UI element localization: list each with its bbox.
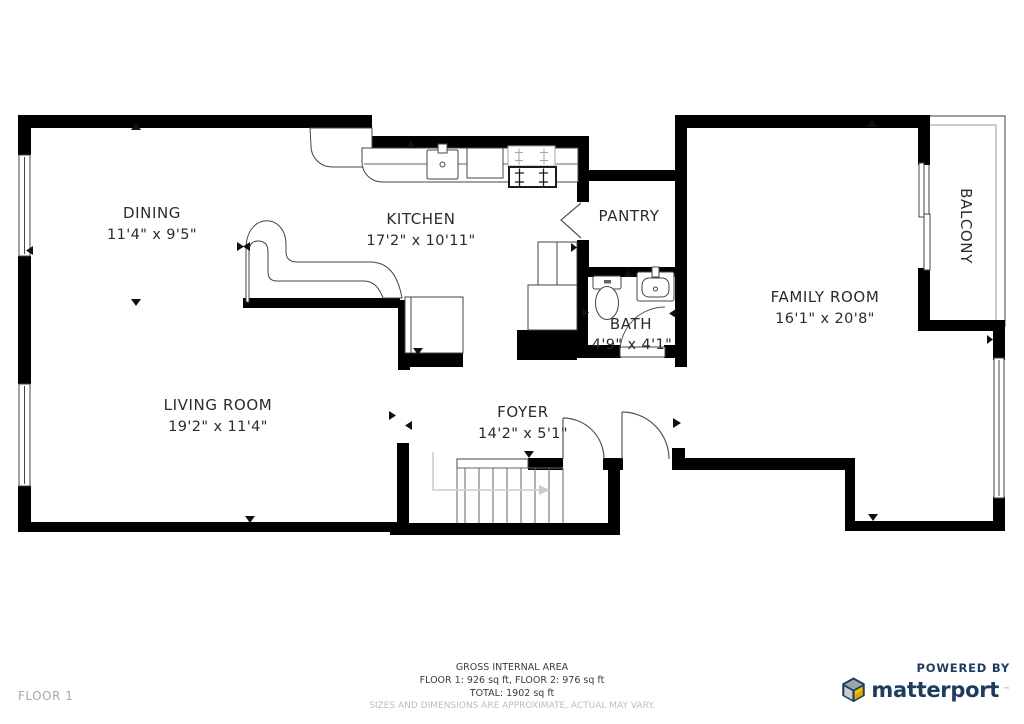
room-label-living-room: LIVING ROOM <box>164 396 273 414</box>
pantry-door <box>561 203 581 238</box>
sliding-door <box>919 163 924 217</box>
room-label-family-room: FAMILY ROOM <box>771 288 880 306</box>
floor-plan-page: DINING 11'4" x 9'5" KITCHEN 17'2" x 10'1… <box>0 0 1024 724</box>
room-label-pantry: PANTRY <box>599 207 660 225</box>
powered-by-label: POWERED BY <box>840 661 1010 675</box>
trademark-mark: ™ <box>1003 685 1010 695</box>
walk-path <box>433 452 541 490</box>
floor-label: FLOOR 1 <box>18 689 73 703</box>
room-dims-living-room: 19'2" x 11'4" <box>168 419 268 435</box>
faucet <box>438 144 447 153</box>
room-label-kitchen: KITCHEN <box>386 210 455 228</box>
cooktop <box>508 146 555 166</box>
room-dims-kitchen: 17'2" x 10'11" <box>366 233 475 249</box>
sliding-door <box>924 214 930 270</box>
dishwasher <box>467 148 503 178</box>
floor-plan: DINING 11'4" x 9'5" KITCHEN 17'2" x 10'1… <box>0 0 1024 724</box>
stove <box>509 167 556 187</box>
room-dims-bath: 4'9" x 4'1" <box>592 337 672 353</box>
room-dims-foyer: 14'2" x 5'1" <box>478 426 568 442</box>
door-arc <box>622 412 669 459</box>
stair-treads <box>457 468 563 523</box>
room-dims-dining: 11'4" x 9'5" <box>107 227 197 243</box>
room-label-bath: BATH <box>610 315 652 333</box>
matterport-branding: POWERED BY matterport™ <box>840 661 1010 703</box>
bath-faucet <box>652 267 659 277</box>
door-arc <box>563 418 604 459</box>
room-label-foyer: FOYER <box>497 403 549 421</box>
matterport-cube-icon <box>840 676 867 703</box>
toilet-button <box>604 280 611 284</box>
cabinet <box>528 285 577 330</box>
cabinet <box>405 297 463 353</box>
room-dims-family-room: 16'1" x 20'8" <box>775 311 875 327</box>
room-label-balcony: BALCONY <box>957 188 975 264</box>
doors <box>563 412 669 459</box>
walk-path-arrow <box>539 485 550 495</box>
stair-rail <box>457 459 528 468</box>
room-label-dining: DINING <box>123 204 181 222</box>
matterport-wordmark: matterport <box>871 679 999 701</box>
